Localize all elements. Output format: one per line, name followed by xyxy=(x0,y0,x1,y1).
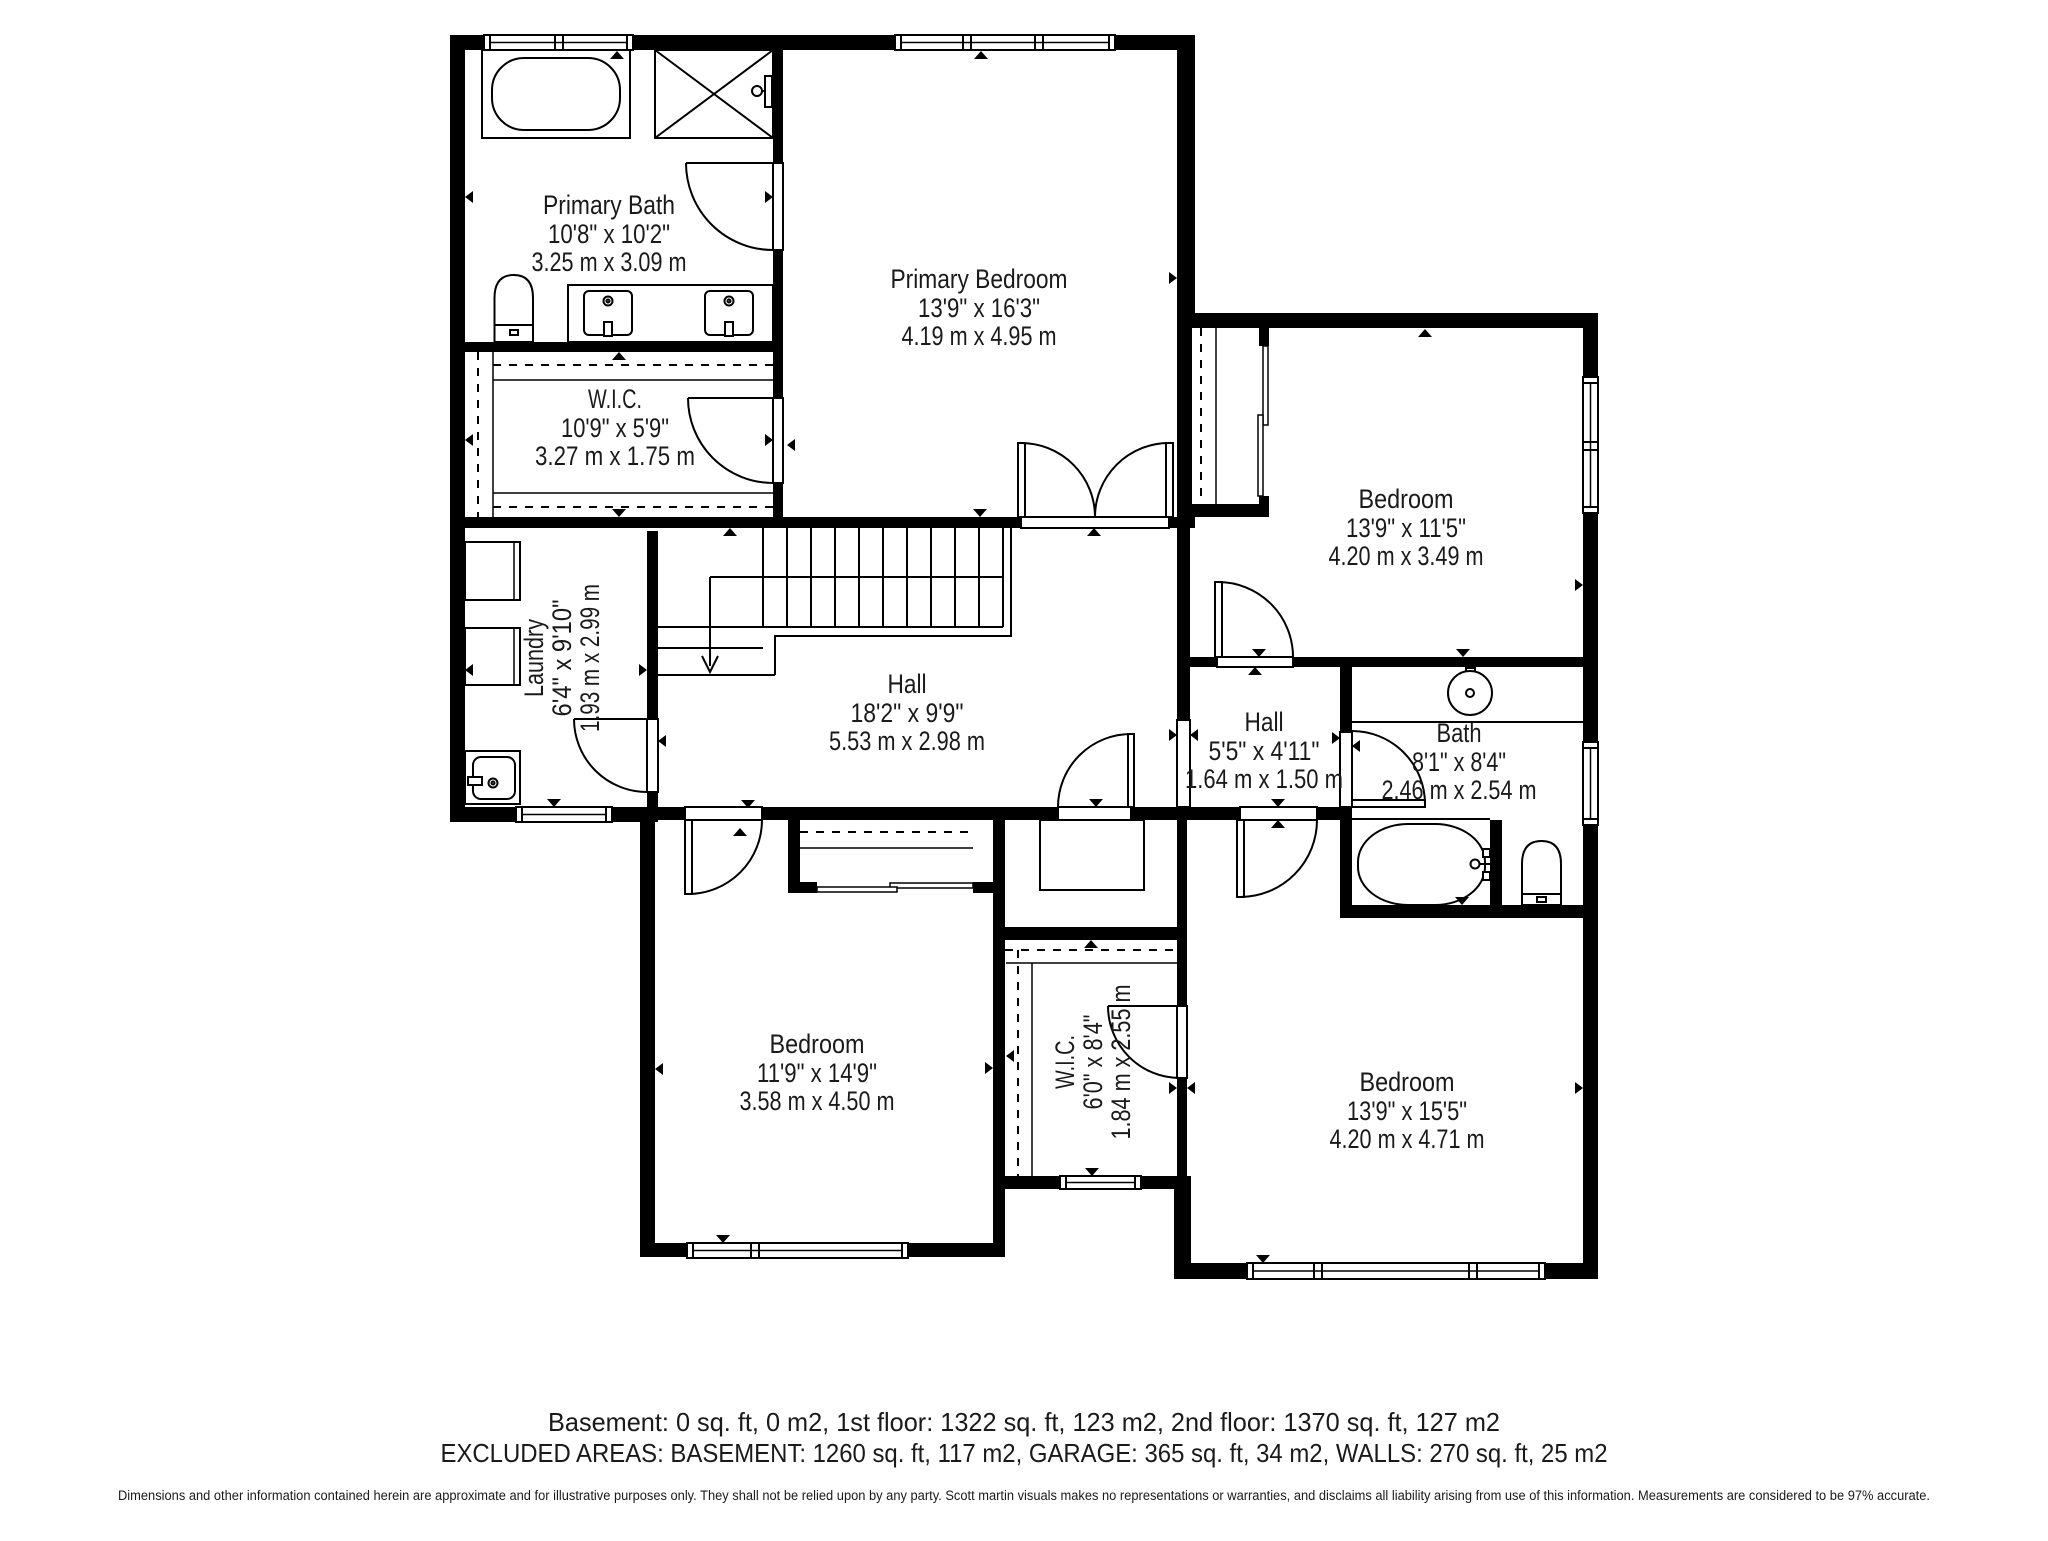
svg-text:Primary Bedroom: Primary Bedroom xyxy=(891,264,1068,294)
svg-text:Dimensions and other informati: Dimensions and other information contain… xyxy=(118,1488,1930,1503)
svg-text:2.46 m x 2.54 m: 2.46 m x 2.54 m xyxy=(1382,775,1537,805)
svg-text:Bedroom: Bedroom xyxy=(1360,1067,1455,1097)
svg-text:1.93 m x 2.99 m: 1.93 m x 2.99 m xyxy=(575,584,605,732)
svg-text:4.20 m x 3.49 m: 4.20 m x 3.49 m xyxy=(1329,541,1484,571)
svg-text:10'9" x 5'9": 10'9" x 5'9" xyxy=(561,413,669,443)
svg-text:Bedroom: Bedroom xyxy=(770,1029,865,1059)
svg-text:5'5" x 4'11": 5'5" x 4'11" xyxy=(1209,736,1320,766)
svg-text:8'1" x 8'4": 8'1" x 8'4" xyxy=(1412,747,1506,777)
svg-text:W.I.C.: W.I.C. xyxy=(588,384,642,414)
svg-text:Bath: Bath xyxy=(1437,718,1482,748)
svg-text:5.53 m x 2.98 m: 5.53 m x 2.98 m xyxy=(829,726,985,756)
svg-text:13'9" x 11'5": 13'9" x 11'5" xyxy=(1346,513,1466,543)
svg-text:6'0" x 8'4": 6'0" x 8'4" xyxy=(1078,1015,1108,1110)
svg-text:1.64 m x 1.50 m: 1.64 m x 1.50 m xyxy=(1185,764,1343,794)
svg-text:Hall: Hall xyxy=(1245,707,1284,737)
svg-text:Laundry: Laundry xyxy=(519,619,549,697)
svg-text:4.19 m x 4.95 m: 4.19 m x 4.95 m xyxy=(902,321,1057,351)
svg-text:W.I.C.: W.I.C. xyxy=(1050,1035,1080,1089)
svg-text:11'9" x 14'9": 11'9" x 14'9" xyxy=(757,1058,877,1088)
svg-text:EXCLUDED AREAS: BASEMENT: 1260: EXCLUDED AREAS: BASEMENT: 1260 sq. ft, 1… xyxy=(441,1438,1608,1468)
svg-text:13'9" x 15'5": 13'9" x 15'5" xyxy=(1347,1096,1467,1126)
svg-text:1.84 m x 2.55 m: 1.84 m x 2.55 m xyxy=(1106,985,1136,1140)
svg-text:Bedroom: Bedroom xyxy=(1359,484,1454,514)
svg-text:Primary Bath: Primary Bath xyxy=(543,190,675,220)
svg-text:3.25 m x 3.09 m: 3.25 m x 3.09 m xyxy=(532,247,687,277)
svg-text:10'8" x 10'2": 10'8" x 10'2" xyxy=(548,219,670,249)
svg-text:18'2" x 9'9": 18'2" x 9'9" xyxy=(851,698,964,728)
svg-text:Basement: 0 sq. ft, 0 m2, 1st: Basement: 0 sq. ft, 0 m2, 1st floor: 132… xyxy=(548,1407,1500,1437)
svg-text:6'4" x 9'10": 6'4" x 9'10" xyxy=(547,600,577,717)
svg-text:13'9" x 16'3": 13'9" x 16'3" xyxy=(918,293,1040,323)
svg-text:Hall: Hall xyxy=(888,669,927,699)
svg-text:4.20 m x 4.71 m: 4.20 m x 4.71 m xyxy=(1330,1124,1485,1154)
svg-text:3.27 m x 1.75 m: 3.27 m x 1.75 m xyxy=(535,441,695,471)
svg-text:3.58 m x 4.50 m: 3.58 m x 4.50 m xyxy=(740,1086,895,1116)
